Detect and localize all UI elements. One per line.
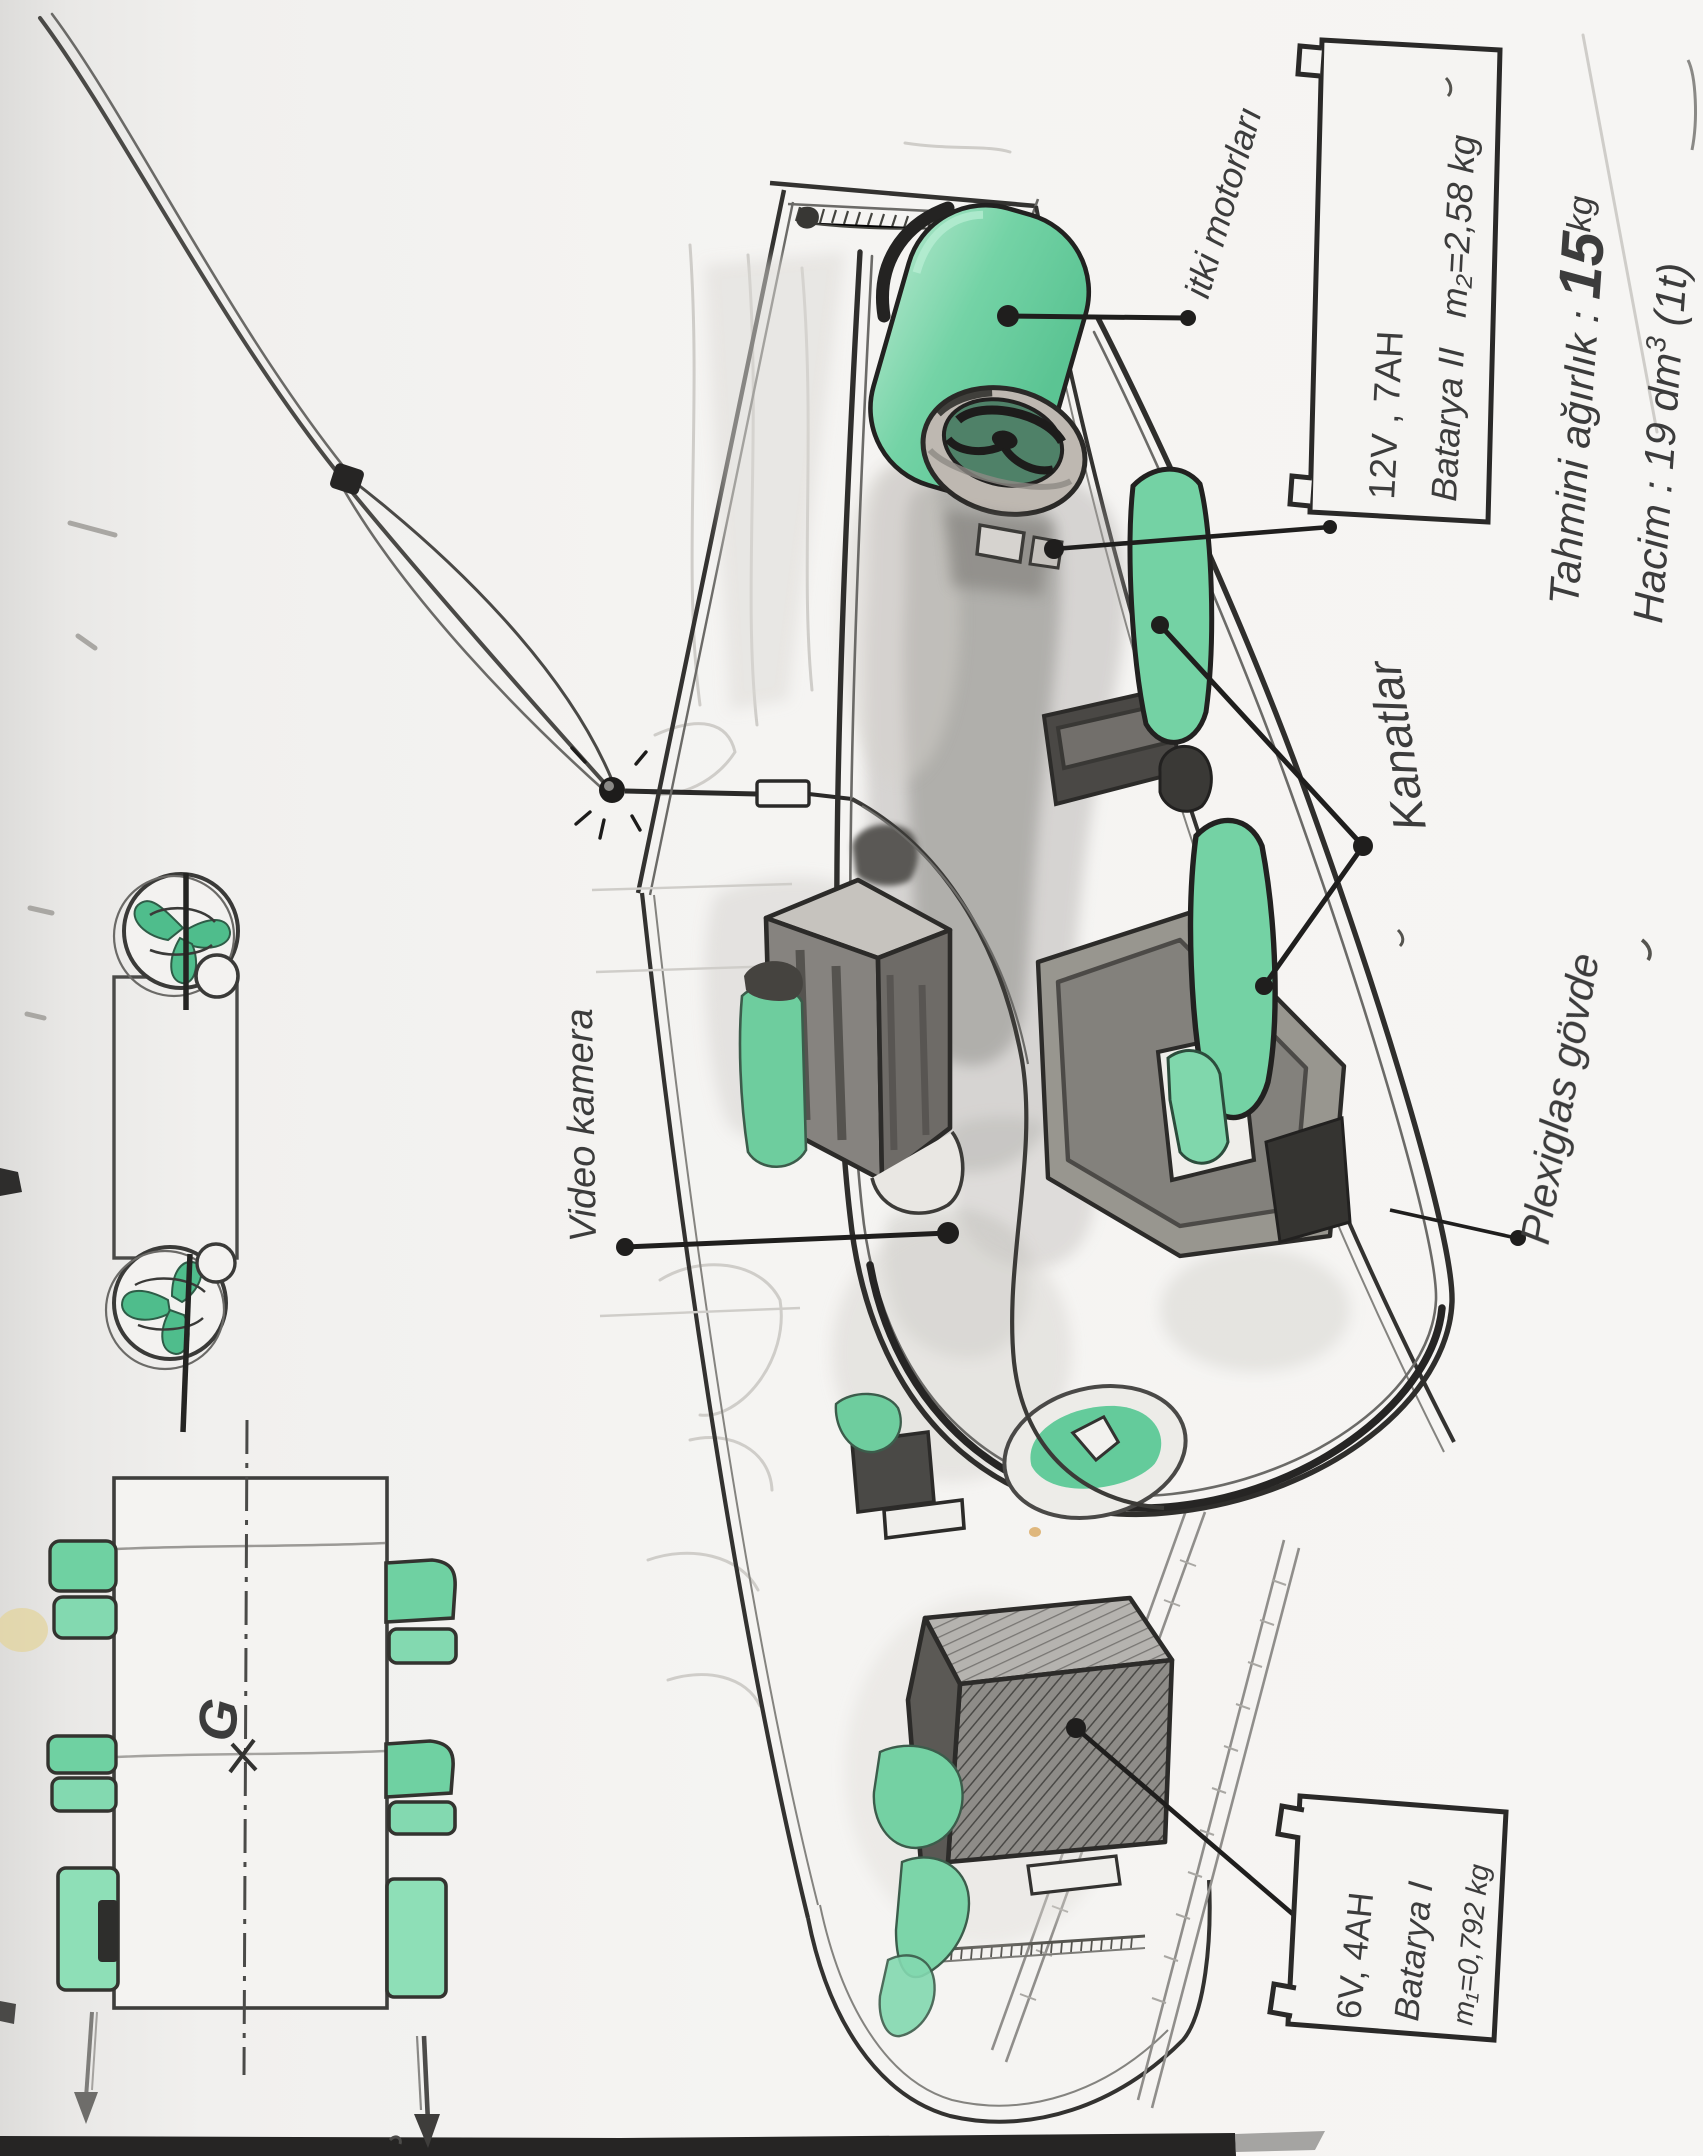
svg-text:G: G xyxy=(186,1695,251,1745)
svg-text:Video kamera: Video kamera xyxy=(559,1008,605,1242)
